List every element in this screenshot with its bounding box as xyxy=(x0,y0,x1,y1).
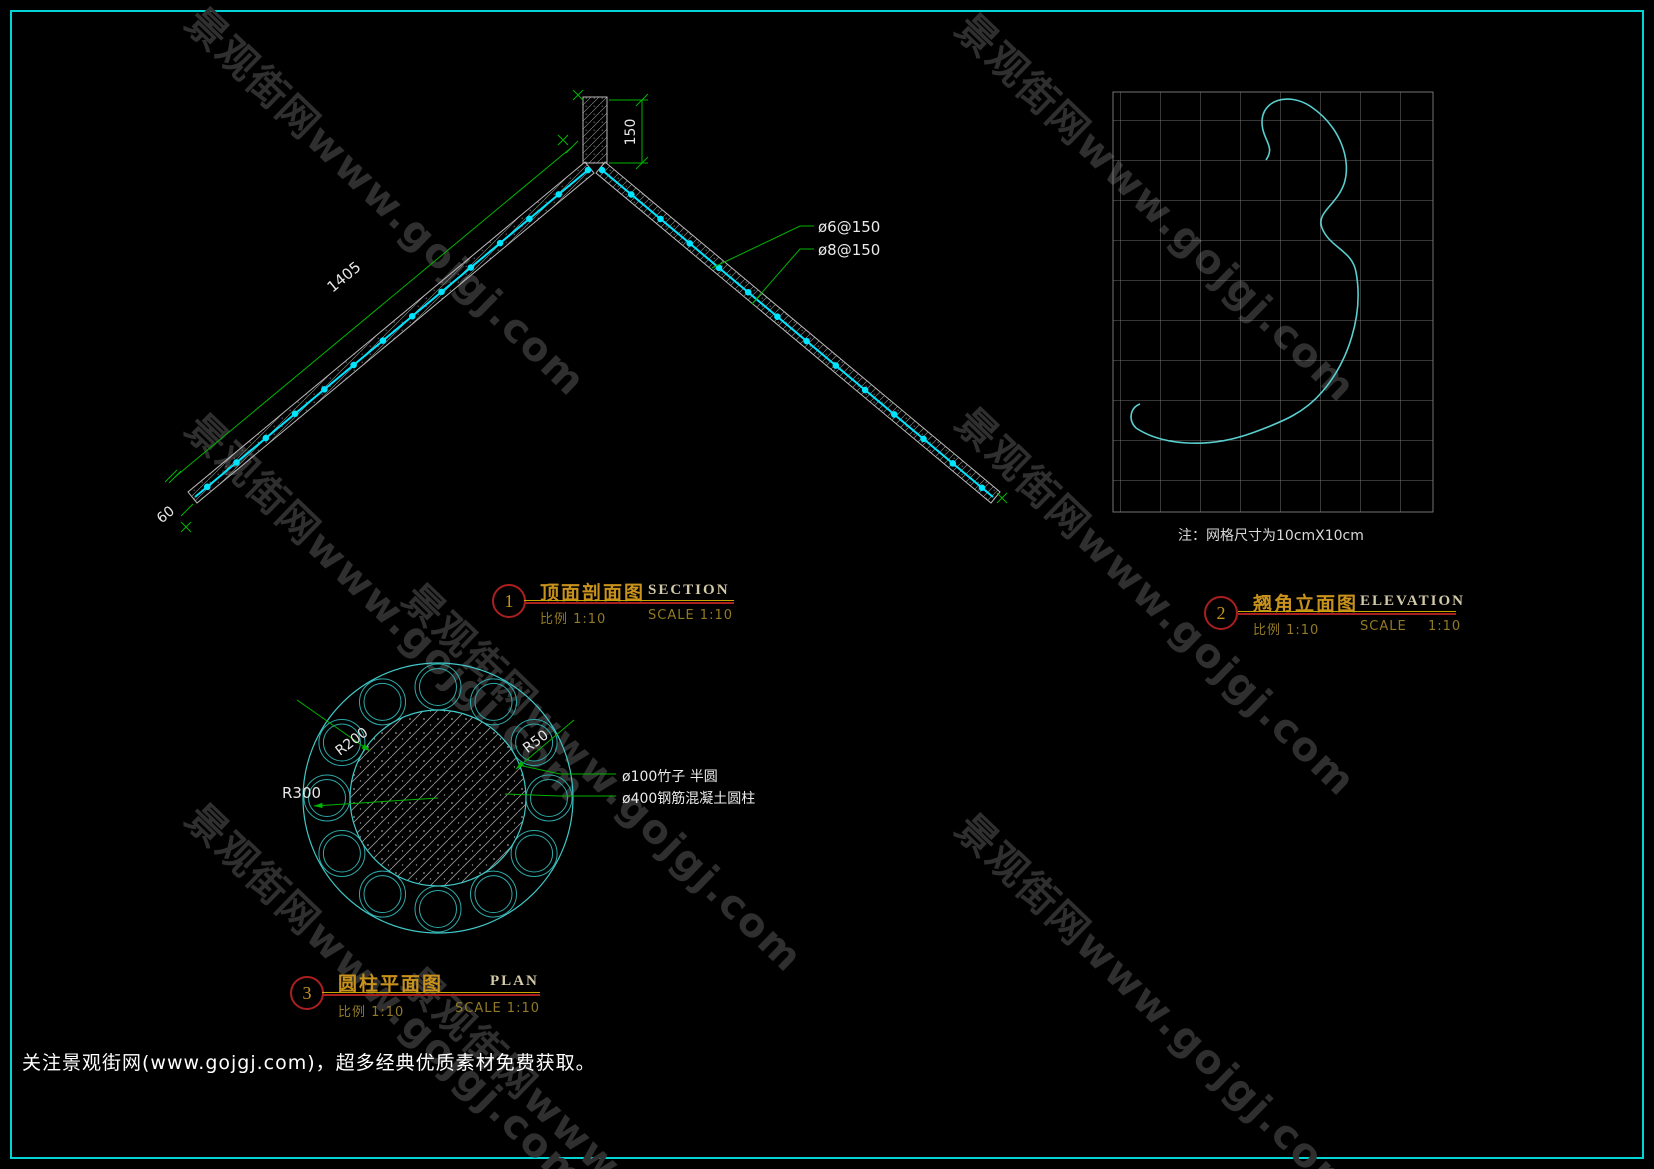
detail-number: 2 xyxy=(1217,603,1226,624)
detail-number-badge: 2 xyxy=(1204,596,1238,630)
section-title-en: SECTION xyxy=(648,582,730,599)
callout-bamboo: ø100竹子 半圆 xyxy=(622,766,718,786)
section-apex-post xyxy=(583,97,607,163)
callout-column: ø400钢筋混凝土圆柱 xyxy=(622,788,755,808)
section-scale-en: SCALE 1:10 xyxy=(648,608,733,623)
callout-rebar-top: ø6@150 xyxy=(818,218,880,236)
footer-note: 关注景观街网(www.gojgj.com)，超多经典优质素材免费获取。 xyxy=(22,1048,596,1075)
plan-title-en: PLAN xyxy=(490,973,539,990)
section-roof-slabs xyxy=(188,97,1000,503)
radius-outer-label: R300 xyxy=(282,784,321,802)
elevation-scale-value: 1:10 xyxy=(1428,619,1461,634)
elevation-title-en: ELEVATION xyxy=(1360,593,1465,610)
elevation-grid xyxy=(1113,92,1433,512)
plan-scale-cn: 比例 1:10 xyxy=(338,1001,404,1020)
elevation-scale-en: SCALE xyxy=(1360,619,1407,634)
title-underline xyxy=(1238,611,1456,612)
elevation-scale-cn: 比例 1:10 xyxy=(1253,619,1319,638)
cad-sheet: 景观街网www.gojgj.com 景观街网www.gojgj.com 景观街网… xyxy=(0,0,1654,1169)
detail-number-badge: 3 xyxy=(290,976,324,1010)
detail-number: 3 xyxy=(303,983,312,1004)
title-underline xyxy=(524,602,734,604)
plan-scale-en: SCALE 1:10 xyxy=(455,1001,540,1016)
detail-number: 1 xyxy=(505,591,514,612)
section-scale-cn: 比例 1:10 xyxy=(540,608,606,627)
title-underline xyxy=(1238,613,1456,615)
detail-number-badge: 1 xyxy=(492,584,526,618)
grid-note: 注：网格尺寸为10cmX10cm xyxy=(1178,525,1364,545)
title-underline xyxy=(524,600,734,601)
title-underline xyxy=(322,994,540,996)
callout-rebar-bottom: ø8@150 xyxy=(818,241,880,259)
cad-linework xyxy=(0,0,1654,1169)
dim-apex-height: 150 xyxy=(623,112,639,152)
title-underline xyxy=(322,992,540,993)
